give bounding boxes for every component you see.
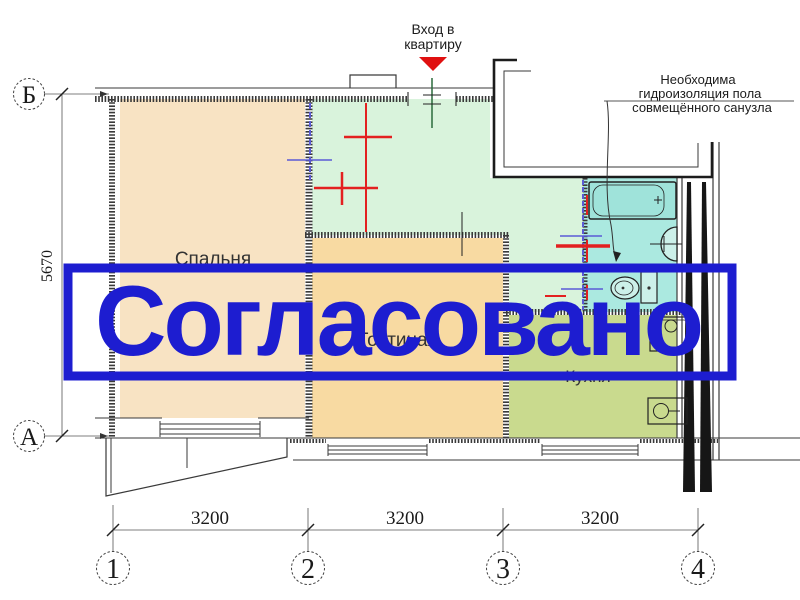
balcony: [106, 438, 287, 496]
dimension-label-1: 3200: [191, 508, 229, 529]
axis-label-2: 2: [301, 554, 315, 585]
axis-label-B: Б: [22, 82, 36, 109]
kitchen-window: [542, 444, 638, 456]
approval-stamp-text: Согласовано: [95, 265, 701, 376]
entrance-label-line2: квартиру: [404, 36, 462, 52]
axis-label-3: 3: [496, 554, 510, 585]
vertical-dimension-label: 5670: [39, 250, 56, 282]
entrance-label-line1: Вход в: [412, 21, 455, 37]
entrance-arrow-icon: [419, 57, 447, 71]
floor-plan-drawing: Вход в квартиру Необходима гидроизоляция…: [0, 0, 800, 600]
approval-stamp: Согласовано: [68, 265, 732, 376]
note-line3: совмещённого санузла: [632, 100, 772, 115]
living-window: [328, 444, 427, 456]
axis-label-1: 1: [106, 554, 120, 585]
vent-duct-icon: [700, 182, 712, 492]
axis-label-4: 4: [691, 554, 705, 585]
entrance: Вход в квартиру: [404, 21, 462, 71]
dimension-label-3: 3200: [581, 508, 619, 529]
note-line1: Необходима: [660, 72, 736, 87]
axis-label-A: А: [20, 424, 38, 451]
dimension-label-2: 3200: [386, 508, 424, 529]
apartment-floor-plan-page: Вход в квартиру Необходима гидроизоляция…: [0, 0, 800, 600]
note-line2: гидроизоляция пола: [639, 86, 763, 101]
bathtub-icon: [589, 182, 676, 219]
